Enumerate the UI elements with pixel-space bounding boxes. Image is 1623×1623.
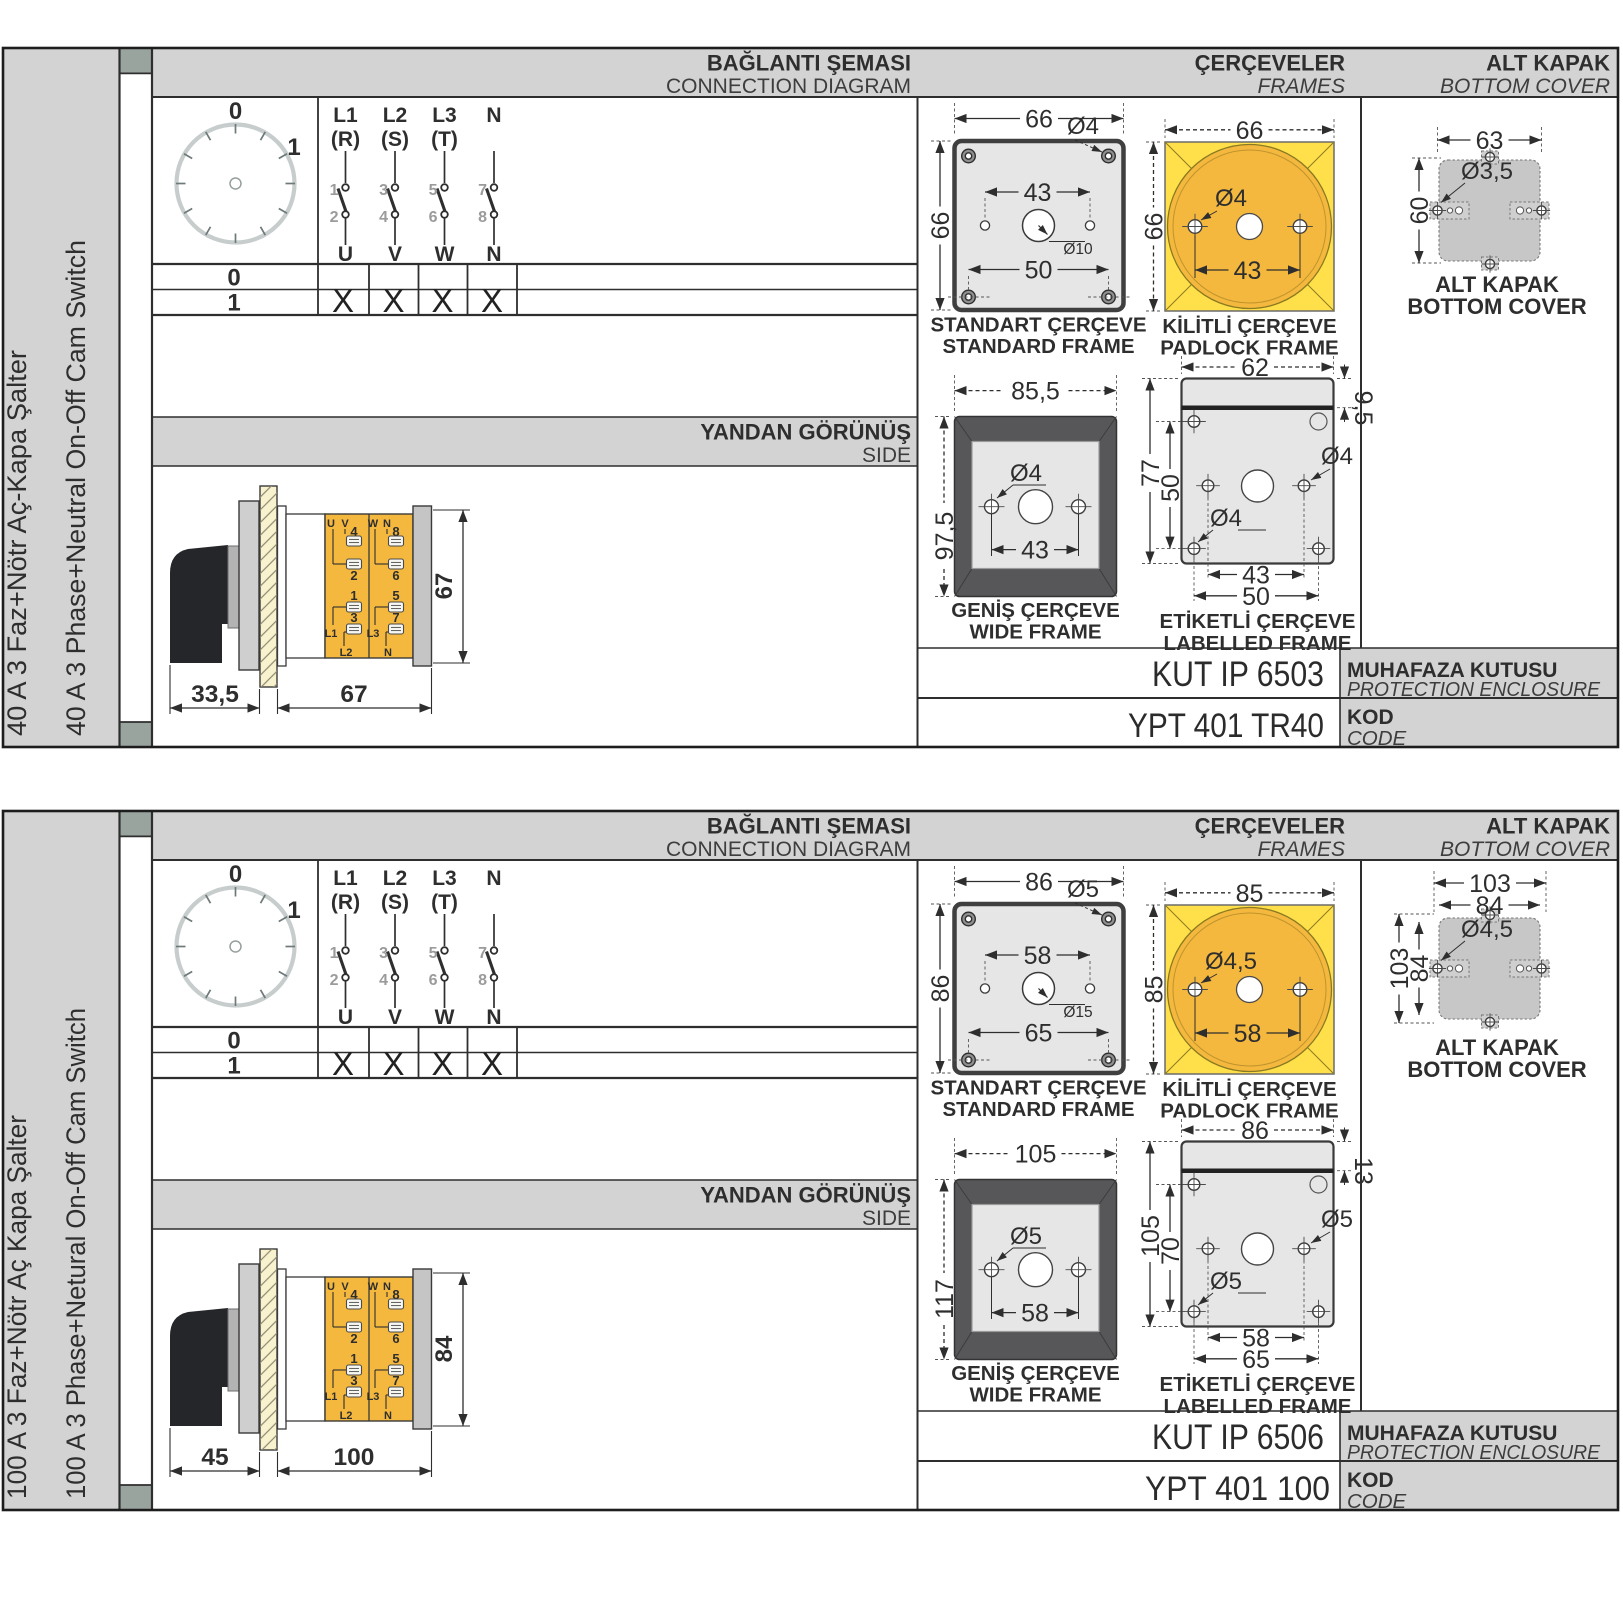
svg-text:L3: L3 (367, 628, 380, 640)
svg-text:U: U (338, 243, 353, 266)
svg-text:100 A 3 Phase+Netural On-Off C: 100 A 3 Phase+Netural On-Off Cam Switch (61, 1008, 91, 1499)
svg-text:84: 84 (431, 1335, 458, 1362)
svg-text:L2: L2 (383, 104, 408, 127)
svg-text:ÇERÇEVELER: ÇERÇEVELER (1195, 814, 1345, 839)
svg-text:LABELLED FRAME: LABELLED FRAME (1164, 632, 1352, 655)
svg-text:N: N (486, 104, 501, 127)
svg-text:4: 4 (379, 972, 388, 989)
svg-text:8: 8 (478, 972, 487, 989)
svg-text:Ø5: Ø5 (1210, 1268, 1242, 1295)
svg-text:YANDAN GÖRÜNÜŞ: YANDAN GÖRÜNÜŞ (700, 1183, 911, 1208)
svg-text:ALT KAPAK: ALT KAPAK (1486, 51, 1610, 76)
svg-text:V: V (341, 518, 349, 530)
svg-text:X: X (332, 282, 354, 319)
svg-text:W: W (435, 1006, 455, 1029)
svg-text:5: 5 (429, 945, 438, 962)
svg-text:6: 6 (429, 972, 438, 989)
svg-text:1: 1 (330, 182, 339, 199)
svg-text:BOTTOM COVER: BOTTOM COVER (1440, 75, 1610, 98)
svg-text:Ø4: Ø4 (1321, 443, 1353, 470)
svg-text:KOD: KOD (1347, 1469, 1394, 1492)
svg-text:KUT IP 6506: KUT IP 6506 (1152, 1417, 1324, 1457)
svg-text:FRAMES: FRAMES (1257, 838, 1345, 861)
svg-text:7: 7 (478, 182, 487, 199)
svg-text:66: 66 (1236, 117, 1264, 145)
svg-text:BOTTOM COVER: BOTTOM COVER (1407, 1057, 1586, 1082)
svg-text:ÇERÇEVELER: ÇERÇEVELER (1195, 51, 1345, 76)
svg-text:N: N (486, 867, 501, 890)
svg-text:ETİKETLİ ÇERÇEVE: ETİKETLİ ÇERÇEVE (1160, 610, 1356, 633)
svg-text:V: V (388, 1006, 402, 1029)
svg-text:13: 13 (1349, 1157, 1377, 1185)
svg-text:5: 5 (429, 182, 438, 199)
svg-text:7: 7 (392, 1373, 399, 1388)
svg-text:U: U (327, 1281, 335, 1293)
svg-text:Ø4,5: Ø4,5 (1205, 948, 1257, 975)
svg-text:L2: L2 (340, 647, 353, 659)
svg-text:X: X (431, 1045, 453, 1082)
svg-text:2: 2 (350, 568, 357, 583)
svg-text:GENİŞ ÇERÇEVE: GENİŞ ÇERÇEVE (951, 599, 1120, 622)
svg-text:8: 8 (478, 209, 487, 226)
svg-text:Ø4: Ø4 (1210, 505, 1242, 532)
svg-text:YPT 401 100: YPT 401 100 (1145, 1470, 1330, 1508)
svg-text:SIDE: SIDE (862, 444, 911, 467)
svg-text:YPT 401 TR40: YPT 401 TR40 (1128, 707, 1324, 745)
svg-text:40 A 3 Faz+Nötr Aç-Kapa Şalter: 40 A 3 Faz+Nötr Aç-Kapa Şalter (2, 350, 32, 736)
svg-text:(R): (R) (331, 891, 360, 914)
svg-text:L3: L3 (432, 104, 457, 127)
svg-text:33,5: 33,5 (191, 681, 239, 708)
svg-text:KUT IP 6503: KUT IP 6503 (1152, 654, 1324, 694)
svg-text:ETİKETLİ ÇERÇEVE: ETİKETLİ ÇERÇEVE (1160, 1373, 1356, 1396)
svg-text:Ø10: Ø10 (1063, 241, 1093, 258)
svg-text:67: 67 (340, 681, 367, 708)
svg-text:0: 0 (229, 98, 242, 125)
svg-text:86: 86 (1241, 1117, 1269, 1145)
svg-text:3: 3 (350, 1373, 357, 1388)
svg-text:43: 43 (1021, 537, 1049, 565)
svg-text:6: 6 (429, 209, 438, 226)
svg-text:KİLİTLİ ÇERÇEVE: KİLİTLİ ÇERÇEVE (1162, 1078, 1336, 1101)
svg-text:Ø4: Ø4 (1067, 113, 1099, 140)
svg-text:STANDARD FRAME: STANDARD FRAME (942, 335, 1134, 358)
svg-text:L2: L2 (383, 867, 408, 890)
svg-text:(T): (T) (431, 128, 458, 151)
svg-text:43: 43 (1024, 179, 1052, 207)
svg-text:45: 45 (201, 1444, 228, 1471)
svg-text:N: N (384, 1410, 392, 1422)
svg-text:6: 6 (392, 1331, 399, 1346)
svg-text:WIDE FRAME: WIDE FRAME (969, 1384, 1101, 1407)
svg-text:9,5: 9,5 (1349, 391, 1377, 426)
svg-text:Ø4: Ø4 (1215, 185, 1247, 212)
svg-text:X: X (431, 282, 453, 319)
svg-text:V: V (388, 243, 402, 266)
svg-text:66: 66 (1025, 106, 1053, 134)
svg-text:PROTECTION ENCLOSURE: PROTECTION ENCLOSURE (1347, 1441, 1600, 1464)
svg-text:84: 84 (1406, 955, 1434, 983)
svg-text:N: N (486, 1006, 501, 1029)
svg-text:50: 50 (1242, 583, 1270, 611)
svg-text:U: U (327, 518, 335, 530)
svg-text:ALT KAPAK: ALT KAPAK (1486, 814, 1610, 839)
svg-text:86: 86 (927, 975, 955, 1003)
svg-text:GENİŞ ÇERÇEVE: GENİŞ ÇERÇEVE (951, 1362, 1120, 1385)
svg-text:86: 86 (1025, 869, 1053, 897)
svg-text:Ø4: Ø4 (1010, 460, 1042, 487)
svg-text:65: 65 (1242, 1346, 1270, 1374)
svg-text:N: N (383, 518, 391, 530)
svg-text:CODE: CODE (1347, 1490, 1407, 1513)
svg-text:W: W (368, 1281, 379, 1293)
svg-text:97,5: 97,5 (931, 512, 959, 561)
svg-text:(S): (S) (381, 891, 409, 914)
svg-text:W: W (368, 518, 379, 530)
svg-text:5: 5 (392, 1351, 399, 1366)
svg-text:N: N (384, 647, 392, 659)
svg-text:(S): (S) (381, 128, 409, 151)
svg-text:7: 7 (392, 610, 399, 625)
svg-text:X: X (382, 1045, 404, 1082)
svg-text:58: 58 (1234, 1020, 1262, 1048)
svg-text:7: 7 (478, 945, 487, 962)
svg-text:BOTTOM COVER: BOTTOM COVER (1407, 294, 1586, 319)
svg-text:50: 50 (1025, 257, 1053, 285)
svg-text:85,5: 85,5 (1011, 378, 1060, 406)
svg-text:YANDAN GÖRÜNÜŞ: YANDAN GÖRÜNÜŞ (700, 420, 911, 445)
svg-text:CONNECTION DIAGRAM: CONNECTION DIAGRAM (666, 838, 911, 861)
svg-text:6: 6 (392, 568, 399, 583)
svg-text:100: 100 (334, 1444, 375, 1471)
svg-text:V: V (341, 1281, 349, 1293)
svg-text:1: 1 (227, 1053, 240, 1080)
svg-text:Ø4,5: Ø4,5 (1461, 916, 1513, 943)
svg-text:BAĞLANTI ŞEMASI: BAĞLANTI ŞEMASI (707, 51, 911, 76)
svg-text:BAĞLANTI ŞEMASI: BAĞLANTI ŞEMASI (707, 814, 911, 839)
svg-text:62: 62 (1241, 354, 1269, 382)
svg-text:STANDARD FRAME: STANDARD FRAME (942, 1098, 1134, 1121)
svg-text:1: 1 (287, 134, 300, 161)
svg-text:Ø5: Ø5 (1010, 1223, 1042, 1250)
svg-text:L1: L1 (333, 867, 358, 890)
svg-text:58: 58 (1021, 1300, 1049, 1328)
svg-text:L1: L1 (333, 104, 358, 127)
svg-text:X: X (382, 282, 404, 319)
svg-text:N: N (383, 1281, 391, 1293)
svg-text:L1: L1 (325, 628, 338, 640)
svg-text:1: 1 (350, 588, 357, 603)
svg-text:Ø5: Ø5 (1067, 876, 1099, 903)
svg-text:4: 4 (379, 209, 388, 226)
svg-text:3: 3 (379, 182, 388, 199)
svg-text:2: 2 (330, 209, 339, 226)
svg-text:43: 43 (1234, 257, 1262, 285)
svg-text:KOD: KOD (1347, 706, 1394, 729)
svg-text:1: 1 (330, 945, 339, 962)
svg-text:85: 85 (1141, 976, 1169, 1004)
svg-text:0: 0 (229, 861, 242, 888)
svg-text:5: 5 (392, 588, 399, 603)
svg-text:BOTTOM COVER: BOTTOM COVER (1440, 838, 1610, 861)
svg-text:Ø5: Ø5 (1321, 1206, 1353, 1233)
svg-text:Ø15: Ø15 (1063, 1004, 1092, 1021)
svg-text:SIDE: SIDE (862, 1207, 911, 1230)
svg-text:PROTECTION ENCLOSURE: PROTECTION ENCLOSURE (1347, 678, 1600, 701)
svg-text:58: 58 (1024, 942, 1052, 970)
svg-text:CODE: CODE (1347, 727, 1407, 750)
svg-text:0: 0 (227, 265, 240, 292)
svg-text:KİLİTLİ ÇERÇEVE: KİLİTLİ ÇERÇEVE (1162, 315, 1336, 338)
svg-text:L3: L3 (367, 1391, 380, 1403)
svg-text:1: 1 (227, 290, 240, 317)
svg-text:50: 50 (1157, 474, 1185, 502)
svg-text:67: 67 (431, 573, 458, 600)
svg-text:(R): (R) (331, 128, 360, 151)
svg-text:STANDART ÇERÇEVE: STANDART ÇERÇEVE (930, 314, 1146, 337)
svg-text:X: X (481, 282, 503, 319)
svg-text:1: 1 (287, 897, 300, 924)
svg-text:100 A 3 Faz+Nötr Aç Kapa Şalte: 100 A 3 Faz+Nötr Aç Kapa Şalter (2, 1115, 32, 1499)
svg-text:105: 105 (1015, 1141, 1057, 1169)
svg-text:40 A 3 Phase+Neutral On-Off Ca: 40 A 3 Phase+Neutral On-Off Cam Switch (61, 240, 91, 736)
svg-text:65: 65 (1025, 1020, 1053, 1048)
svg-text:W: W (435, 243, 455, 266)
svg-text:2: 2 (350, 1331, 357, 1346)
svg-text:LABELLED FRAME: LABELLED FRAME (1164, 1395, 1352, 1418)
svg-text:L3: L3 (432, 867, 457, 890)
svg-text:85: 85 (1236, 880, 1264, 908)
svg-text:CONNECTION DIAGRAM: CONNECTION DIAGRAM (666, 75, 911, 98)
svg-text:WIDE FRAME: WIDE FRAME (969, 621, 1101, 644)
svg-text:1: 1 (350, 1351, 357, 1366)
svg-text:L1: L1 (325, 1391, 338, 1403)
svg-text:U: U (338, 1006, 353, 1029)
svg-text:X: X (332, 1045, 354, 1082)
svg-text:3: 3 (379, 945, 388, 962)
svg-text:60: 60 (1406, 197, 1434, 225)
svg-text:117: 117 (931, 1279, 959, 1319)
svg-text:(T): (T) (431, 891, 458, 914)
svg-text:N: N (486, 243, 501, 266)
svg-text:66: 66 (927, 212, 955, 240)
svg-text:X: X (481, 1045, 503, 1082)
svg-text:70: 70 (1157, 1237, 1185, 1265)
svg-text:L2: L2 (340, 1410, 353, 1422)
svg-text:Ø3,5: Ø3,5 (1461, 158, 1513, 185)
svg-text:66: 66 (1141, 213, 1169, 241)
svg-text:STANDART ÇERÇEVE: STANDART ÇERÇEVE (930, 1077, 1146, 1100)
svg-text:3: 3 (350, 610, 357, 625)
svg-text:63: 63 (1476, 127, 1504, 155)
svg-text:2: 2 (330, 972, 339, 989)
svg-text:0: 0 (227, 1028, 240, 1055)
svg-text:FRAMES: FRAMES (1257, 75, 1345, 98)
